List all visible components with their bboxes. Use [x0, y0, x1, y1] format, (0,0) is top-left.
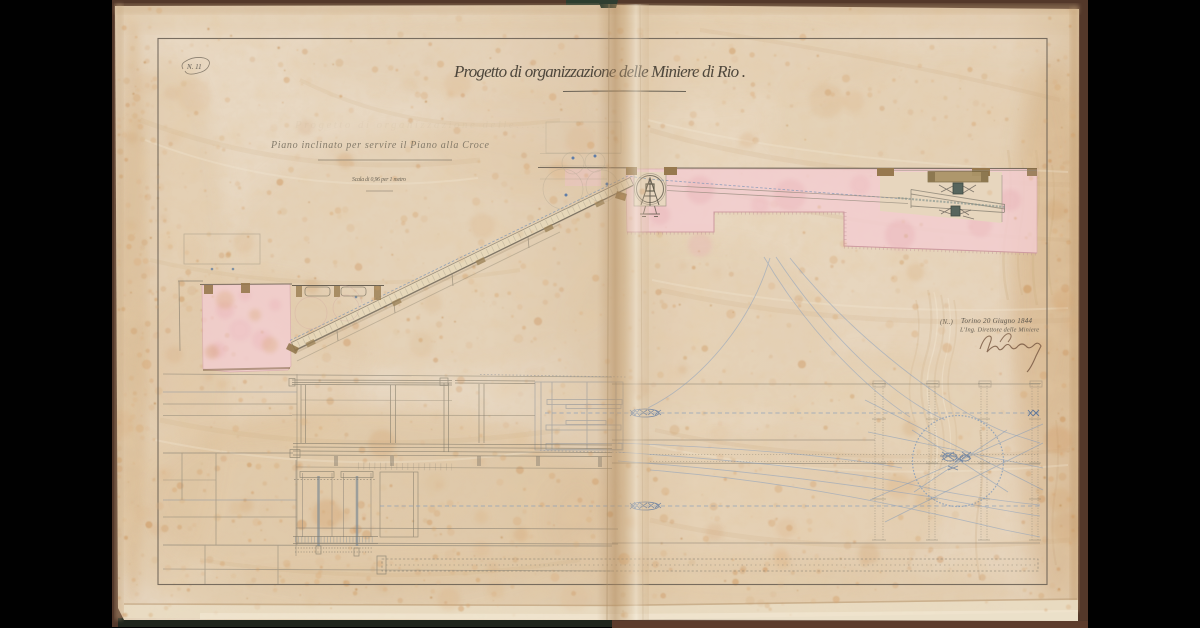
svg-text:Torino 20 Giugno 1844: Torino 20 Giugno 1844 [961, 317, 1033, 325]
svg-text:N. 11: N. 11 [186, 63, 202, 71]
svg-text:(N..): (N..) [940, 318, 954, 326]
svg-text:Piano inclinato per servire il: Piano inclinato per servire il Piano all… [270, 140, 490, 151]
svg-text:L'Ing. Direttore delle Miniere: L'Ing. Direttore delle Miniere [959, 327, 1039, 334]
svg-text:Scala di 0,96 per 1 metro: Scala di 0,96 per 1 metro [352, 177, 406, 183]
